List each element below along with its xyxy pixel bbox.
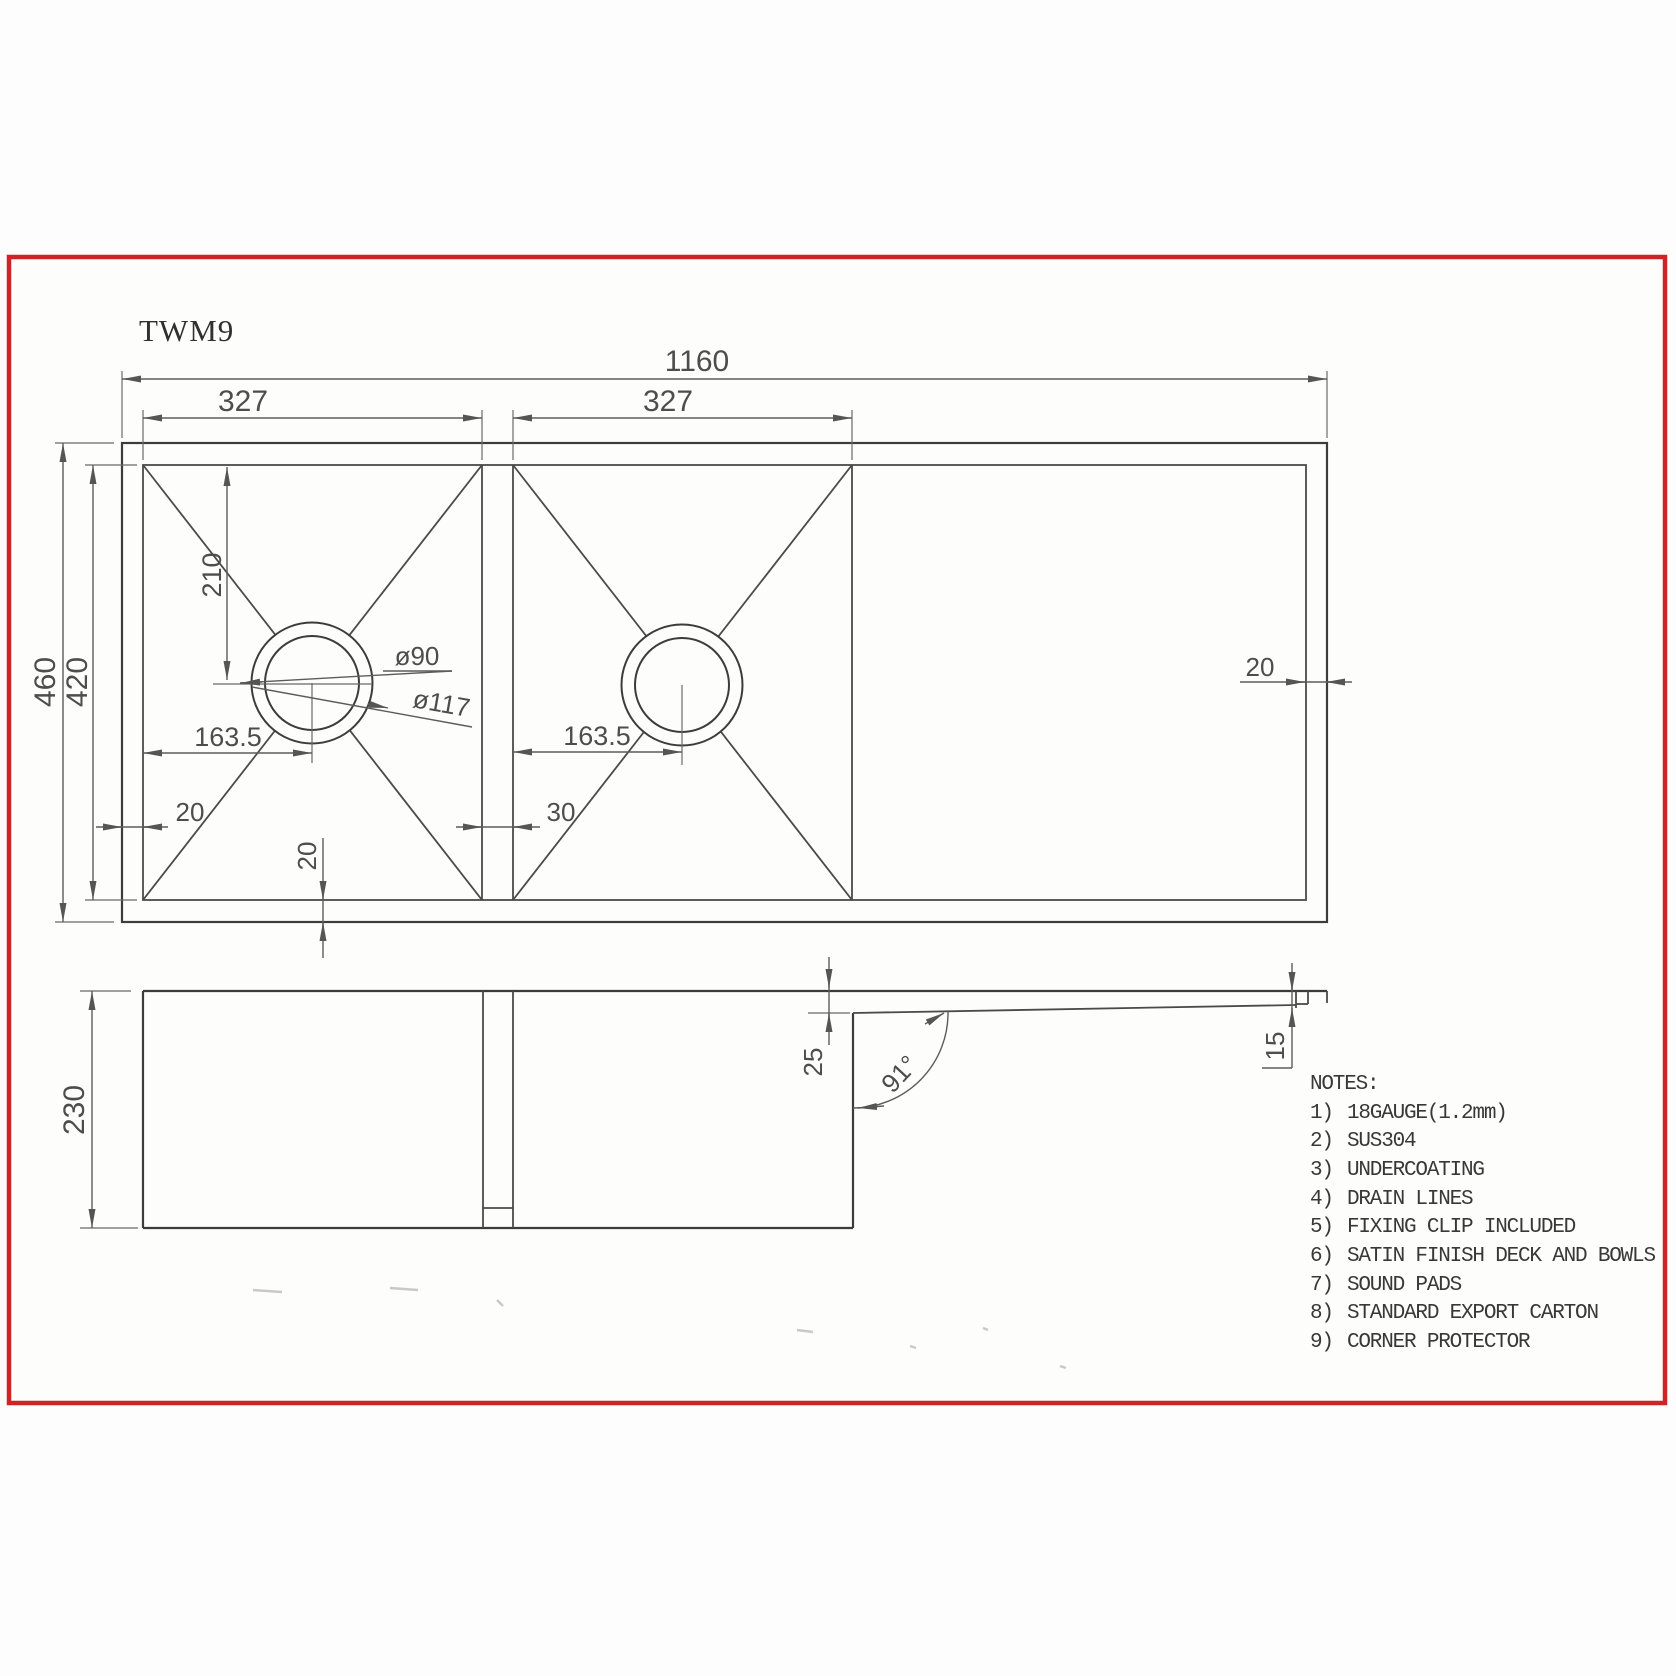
svg-text:230: 230: [58, 1085, 91, 1135]
notes-heading: NOTES:: [1310, 1073, 1378, 1096]
svg-text:420: 420: [61, 657, 94, 707]
note-text: SUS304: [1347, 1130, 1416, 1153]
note-num: 2): [1310, 1130, 1333, 1153]
note-num: 1): [1310, 1102, 1333, 1125]
svg-text:327: 327: [643, 385, 693, 418]
svg-text:210: 210: [197, 552, 227, 597]
svg-text:163.5: 163.5: [563, 721, 631, 751]
svg-text:20: 20: [292, 842, 322, 871]
note-num: 9): [1310, 1331, 1333, 1354]
note-num: 5): [1310, 1216, 1333, 1239]
note-text: SOUND PADS: [1347, 1274, 1462, 1297]
drawing-sheet: TWM9 1160: [0, 0, 1676, 1676]
svg-text:327: 327: [218, 385, 268, 418]
note-text: DRAIN LINES: [1347, 1188, 1473, 1211]
svg-text:460: 460: [29, 657, 62, 707]
svg-text:20: 20: [1246, 652, 1275, 682]
note-text: CORNER PROTECTOR: [1347, 1331, 1531, 1354]
svg-text:20: 20: [176, 797, 205, 827]
note-num: 6): [1310, 1245, 1333, 1268]
technical-drawing: TWM9 1160: [0, 0, 1676, 1676]
note-text: 18GAUGE(1.2mm): [1347, 1102, 1507, 1125]
svg-text:15: 15: [1260, 1032, 1290, 1061]
svg-text:1160: 1160: [665, 345, 730, 378]
note-num: 4): [1310, 1188, 1333, 1211]
note-num: 3): [1310, 1159, 1333, 1182]
note-text: SATIN FINISH DECK AND BOWLS: [1347, 1245, 1655, 1268]
svg-text:30: 30: [547, 797, 576, 827]
note-text: UNDERCOATING: [1347, 1159, 1484, 1182]
note-num: 8): [1310, 1302, 1333, 1325]
note-text: FIXING CLIP INCLUDED: [1347, 1216, 1576, 1239]
svg-text:25: 25: [798, 1048, 828, 1077]
note-num: 7): [1310, 1274, 1333, 1297]
model-title: TWM9: [139, 313, 234, 348]
svg-text:163.5: 163.5: [194, 722, 262, 752]
svg-text:ø90: ø90: [395, 641, 440, 671]
note-text: STANDARD EXPORT CARTON: [1347, 1302, 1598, 1325]
